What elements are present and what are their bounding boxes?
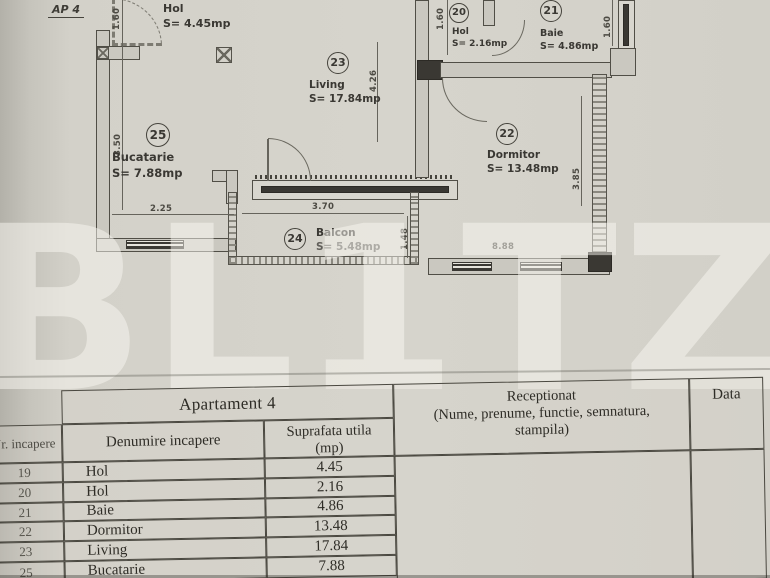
room-label-baie21: Baie S= 4.86mp	[540, 28, 598, 54]
room-label-bucatarie25: Bucatarie S= 7.88mp	[112, 150, 183, 181]
scanned-floor-plan-page: AP 4	[0, 0, 770, 578]
room-area: S= 2.16mp	[452, 38, 507, 50]
table-row-nr: 23	[0, 541, 64, 562]
receptionat-body-cell	[395, 450, 693, 578]
wall	[610, 48, 636, 76]
room-number-23: 23	[327, 52, 349, 74]
room-number-22: 22	[496, 123, 518, 145]
room-number-21: 21	[540, 0, 562, 22]
window	[520, 262, 562, 271]
window	[452, 262, 492, 271]
room-area: S= 5.48mp	[316, 240, 380, 254]
column-icon	[216, 47, 232, 63]
room-name: Baie	[540, 28, 598, 41]
table-row-nr: 21	[0, 502, 64, 522]
receptionat-header-cell: Receptionat (Nume, prenume, functie, sem…	[393, 378, 690, 456]
dim-label: 3.70	[312, 202, 334, 212]
table-row-nr: 19	[0, 462, 63, 483]
dim-label: 1.60	[603, 16, 613, 38]
table-row-nr: 22	[0, 521, 64, 542]
dim-label: 2.25	[150, 204, 172, 214]
denumire-header-cell: Denumire incapere	[62, 420, 265, 462]
room-number-24: 24	[284, 228, 306, 250]
suprafata-header-cell: Suprafata utila (mp)	[264, 418, 395, 458]
window	[261, 186, 449, 193]
balcony-wall	[228, 192, 237, 265]
dim-label: 1.60	[112, 8, 122, 30]
apartment-label: AP 4	[48, 3, 84, 18]
dim-line	[447, 0, 448, 55]
room-label-dormitor22: Dormitor S= 13.48mp	[487, 148, 559, 176]
balcony-wall	[228, 256, 419, 265]
room-number-20: 20	[449, 3, 469, 23]
room-name: Balcon	[316, 226, 380, 240]
data-body-cell	[690, 449, 766, 578]
table-row-sup: 17.84	[266, 535, 396, 557]
room-name: Bucatarie	[112, 150, 183, 166]
table-row-sup: 2.16	[265, 476, 395, 498]
dim-line	[112, 214, 234, 215]
wall	[592, 74, 607, 260]
wall	[440, 62, 612, 78]
dim-label: 1.60	[436, 8, 446, 30]
table-row-sup: 4.45	[265, 456, 395, 478]
room-label-balcon24: Balcon S= 5.48mp	[316, 226, 380, 254]
surface-table: Apartament 4 Receptionat (Nume, prenume,…	[0, 370, 770, 578]
nr-header-cell: Nr. incapere	[0, 424, 63, 463]
room-area: S= 4.45mp	[163, 17, 230, 32]
column	[588, 252, 612, 272]
table-row-nr: 20	[0, 482, 63, 503]
dim-label: 3.85	[572, 168, 582, 190]
door-arc	[442, 78, 487, 122]
wall	[415, 0, 429, 178]
floor-plan: AP 4	[0, 0, 770, 380]
column-icon	[97, 47, 109, 59]
dim-label: 1.48	[400, 228, 410, 250]
room-label-hol19: Hol S= 4.45mp	[163, 2, 230, 32]
data-header-cell: Data	[689, 377, 764, 450]
room-area: S= 4.86mp	[540, 41, 598, 54]
window	[623, 4, 629, 46]
dim-line	[242, 213, 404, 214]
door-arc	[268, 138, 311, 181]
door-leaf	[267, 139, 269, 181]
room-area: S= 7.88mp	[112, 166, 183, 182]
table-row-sup: 13.48	[266, 515, 396, 537]
wall	[96, 30, 110, 252]
dim-label: 8.88	[492, 242, 514, 252]
room-name: Hol	[452, 26, 507, 38]
window	[126, 240, 184, 249]
room-label-living23: Living S= 17.84mp	[309, 78, 381, 106]
room-number-25: 25	[146, 123, 170, 147]
room-name: Living	[309, 78, 381, 92]
room-name: Dormitor	[487, 148, 559, 162]
balcony-wall	[410, 192, 419, 265]
room-area: S= 17.84mp	[309, 92, 381, 106]
room-label-hol20: Hol S= 2.16mp	[452, 26, 507, 50]
room-name: Hol	[163, 2, 230, 17]
room-area: S= 13.48mp	[487, 162, 559, 176]
table-row-sup: 4.86	[265, 496, 395, 517]
